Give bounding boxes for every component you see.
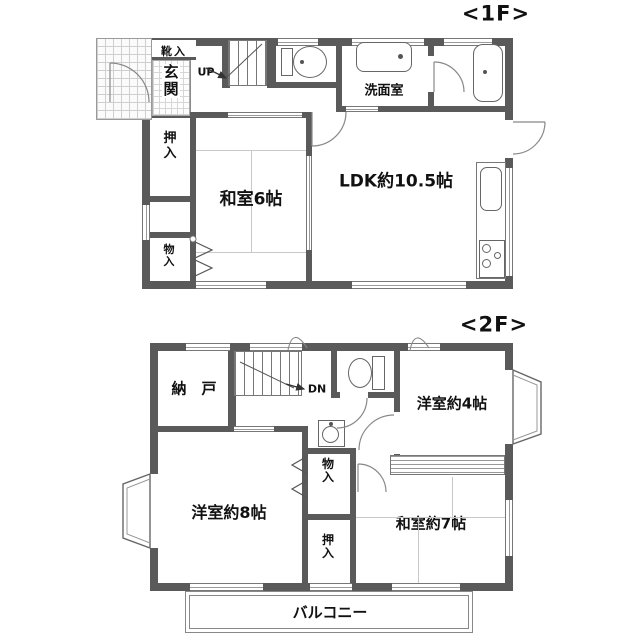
f2-yoshitsu4-label: 洋室約4帖 [417, 397, 487, 412]
f1-washitsu-label: 和室6帖 [220, 192, 283, 209]
f1-shoe-box-label: 靴入 [161, 45, 187, 58]
floor2-label: <2F> [460, 315, 528, 336]
f1-window-washitsu-bottom [196, 281, 266, 289]
f1-washbasin-faucet [398, 54, 403, 59]
f2-window-washitsu7-right [505, 500, 513, 556]
f2-monoire-label: 物入 [321, 458, 335, 485]
f1-window-toilet-top [278, 38, 318, 46]
f1-bath-door-arc [434, 62, 464, 92]
f1-bathtub-drain [483, 70, 487, 74]
f2-stairs [234, 351, 302, 396]
f2-balcony-label: バルコニー [290, 606, 371, 621]
f2-window-yoshitsu8-bottom [190, 583, 263, 591]
f2-window-stairs-top [250, 343, 302, 351]
f1-stove-burner-1 [482, 244, 491, 253]
f1-monoire-label: 物入 [162, 244, 176, 269]
f2-slide-yoshitsu8-door [234, 426, 274, 432]
f1-toilet-tank [281, 48, 293, 76]
f1-window-ldk-bottom [352, 281, 466, 289]
f2-bay-window-left [123, 474, 150, 548]
f1-washroom-label: 洗面室 [364, 85, 403, 98]
f1-bathtub [473, 44, 503, 102]
f1-tatami-line-2 [196, 252, 306, 253]
f2-nando-label: 納 戸 [171, 382, 216, 397]
f2-window-washitsu7-bottom [392, 583, 460, 591]
f2-door-gap-toilet [340, 392, 368, 398]
f2-wall-yoshitsu8-top [150, 426, 308, 432]
f2-wall-monoire-oshiire [302, 514, 356, 520]
f1-wall-toilet-left [267, 38, 276, 88]
f1-kitchen-sink [480, 167, 502, 211]
f1-stairs [228, 40, 267, 86]
f1-wall-monoire-top [142, 232, 196, 238]
f2-window-yoshitsu4-top [408, 343, 440, 351]
f1-washbasin [356, 42, 412, 72]
f1-stairs-up-label: UP [198, 67, 215, 78]
f2-bay-gap-left [150, 474, 158, 548]
f2-toilet-bowl [348, 358, 372, 388]
f2-washitsu7-door-arc [358, 464, 386, 492]
f2-tatami-line-2 [452, 477, 453, 517]
f1-stove-burner-2 [494, 252, 501, 259]
f2-wall-monoire-top [302, 448, 356, 454]
f1-backdoor-arc [513, 122, 545, 154]
f1-shoe-box: 靴入 [152, 40, 196, 60]
f2-stairs-dn-label: DN [308, 384, 326, 395]
f2-door-gap-yoshitsu4 [394, 412, 400, 454]
f2-yoshitsu8-label: 洋室約8帖 [191, 505, 266, 521]
f1-slide-washitsu-ldk [306, 156, 312, 250]
f1-stove-burner-3 [482, 259, 491, 268]
f2-tatami-line-3 [418, 517, 419, 583]
f2-yoshitsu4-door-arc [359, 415, 394, 450]
f1-toilet-dot [300, 60, 304, 64]
f2-sink-faucet [329, 422, 333, 426]
f1-ldk-door-arc [312, 112, 346, 146]
f2-bay-window-right [513, 370, 541, 444]
f1-genkan-label: 玄関 [162, 64, 180, 98]
f1-ldk-label: LDK約10.5帖 [339, 174, 453, 191]
f1-window-right-ldk [505, 168, 513, 276]
f1-wall-washroom-left [336, 38, 342, 112]
floor1-label: <1F> [462, 4, 530, 25]
f2-window-nando-top [186, 343, 230, 351]
f2-wall-left [150, 343, 158, 591]
f2-balcony-door [310, 583, 352, 591]
f1-toilet-bowl [293, 46, 327, 78]
f1-slide-washroom-door [346, 106, 378, 112]
f1-window-left-corridor [142, 205, 150, 240]
f2-closet-louver-band [390, 455, 505, 475]
f2-oshiire-label: 押入 [321, 534, 335, 561]
f2-toilet-tank [372, 356, 385, 390]
f2-sink-basin [322, 426, 339, 443]
f2-tatami-line-1 [356, 517, 505, 518]
f2-washitsu7-label: 和室約7帖 [396, 517, 466, 532]
f1-wall-toilet-bottom [267, 82, 336, 88]
f1-door-gap-bath [428, 56, 434, 92]
f2-bay-gap-right [505, 370, 513, 444]
f1-porch [96, 38, 152, 120]
f1-door-gap-kitchen [505, 120, 513, 158]
f2-wall-toilet-left [331, 343, 337, 398]
f1-oshiire-label: 押入 [162, 132, 178, 161]
f1-wall-oshiire-bottom [142, 196, 196, 202]
f1-slide-washitsu-north [228, 112, 302, 118]
